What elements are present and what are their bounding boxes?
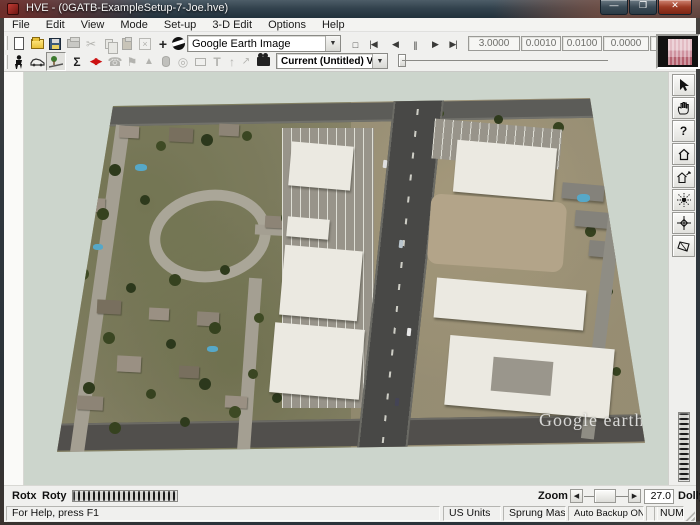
delete-button[interactable]: × <box>136 35 154 52</box>
save-icon <box>49 38 61 50</box>
toolbar: ✂ × + Google Earth Image ▼ □ |◀ ◀ || ▶ ▶… <box>4 33 696 72</box>
human-icon <box>13 55 25 69</box>
set-home-view-button[interactable] <box>672 166 695 188</box>
pause-button[interactable]: || <box>406 36 424 53</box>
copy-icon <box>105 39 113 49</box>
viewer-right-toolbar: ? <box>668 72 696 485</box>
save-button[interactable] <box>46 35 64 52</box>
zoom-value-field[interactable]: 27.0 <box>644 489 674 504</box>
cursor-arrow-icon <box>678 78 690 92</box>
torus-tool-button[interactable]: ◎ <box>174 53 192 70</box>
pan-tool-button[interactable] <box>672 97 695 119</box>
cylinder-tool-button[interactable] <box>157 53 175 70</box>
car <box>399 240 404 248</box>
window-frame-right <box>696 18 700 522</box>
arrow-up-icon: ↑ <box>229 55 235 69</box>
menu-edit[interactable]: Edit <box>38 18 73 32</box>
zoom-increase-button[interactable]: ▶ <box>628 489 641 503</box>
zoom-slider-thumb[interactable] <box>594 489 616 503</box>
pool <box>135 164 147 171</box>
perspective-plane-icon <box>677 240 691 253</box>
flag-tool-button[interactable]: ⚑ <box>123 53 141 70</box>
building-roof <box>269 322 365 400</box>
step-field-2[interactable]: 0.0100 <box>562 36 602 51</box>
step-back-button[interactable]: ◀ <box>386 36 404 53</box>
building-roof <box>288 141 354 190</box>
status-num-lock: NUM <box>654 506 684 521</box>
arrow-ne-icon: ↗ <box>242 57 250 67</box>
roty-label: Roty <box>42 490 66 502</box>
building-roof-complex <box>444 335 614 419</box>
go-to-start-button[interactable]: |◀ <box>364 36 382 53</box>
environment-combo[interactable]: Google Earth Image ▼ <box>187 35 341 52</box>
status-mass: Sprung Mass <box>503 506 566 521</box>
menu-mode[interactable]: Mode <box>112 18 156 32</box>
earth-button[interactable] <box>169 35 187 52</box>
cylinder-icon <box>162 56 170 67</box>
pool <box>577 194 590 202</box>
open-file-button[interactable] <box>28 35 46 52</box>
dolly-thumbwheel[interactable] <box>678 412 690 482</box>
dolly-label: Dolly <box>678 490 700 502</box>
go-to-end-button[interactable]: ▶| <box>444 36 462 53</box>
human-mode-button[interactable] <box>10 53 28 70</box>
title-bar[interactable]: HVE - (0GATB-ExampleSetup-7-Joe.hve) — ❐… <box>0 0 700 18</box>
menu-file[interactable]: File <box>4 18 38 32</box>
value-field[interactable]: 0.0000 <box>603 36 649 51</box>
car <box>407 328 412 336</box>
maximize-button[interactable]: ❐ <box>629 0 657 15</box>
stop-icon: □ <box>353 40 357 50</box>
app-icon <box>7 3 19 15</box>
environment-mode-button[interactable] <box>46 52 66 71</box>
menu-bar: File Edit View Mode Set-up 3-D Edit Opti… <box>4 18 696 32</box>
print-button[interactable] <box>64 35 82 52</box>
animation-slider-track[interactable] <box>402 60 608 61</box>
crosshair-icon <box>677 216 691 230</box>
camera-view-button[interactable] <box>254 53 272 70</box>
texture-preview-image <box>668 39 692 65</box>
status-help-text: For Help, press F1 <box>6 506 440 521</box>
delete-icon: × <box>139 38 151 50</box>
camera-icon <box>257 57 270 66</box>
chevron-down-icon[interactable]: ▼ <box>372 54 387 68</box>
status-units: US Units <box>443 506 501 521</box>
skip-end-icon: ▶| <box>449 39 456 50</box>
menu-options[interactable]: Options <box>260 18 314 32</box>
paste-button[interactable] <box>118 35 136 52</box>
new-file-icon <box>14 37 24 50</box>
building-roof-large <box>453 140 557 201</box>
zoom-label: Zoom <box>538 490 568 502</box>
new-file-button[interactable] <box>10 35 28 52</box>
roty-thumbwheel[interactable] <box>72 490 178 502</box>
toolbar-grip-2[interactable] <box>5 55 8 69</box>
print-icon <box>67 39 80 48</box>
status-backup: Auto Backup ON <box>568 506 644 521</box>
play-icon: ▶ <box>432 39 438 50</box>
home-set-icon <box>676 171 691 184</box>
phone-icon: ☎ <box>108 56 123 68</box>
view-combo-value: Current (Untitled) View <box>277 56 372 67</box>
sigma-icon: Σ <box>73 55 80 69</box>
pool <box>93 244 103 250</box>
view-combo[interactable]: Current (Untitled) View ▼ <box>276 53 388 69</box>
cone-icon: ▲ <box>144 57 154 67</box>
cut-button[interactable]: ✂ <box>82 35 100 52</box>
viewer-left-trim <box>4 72 24 485</box>
playback-mode-button[interactable]: ◀▶ <box>86 53 104 70</box>
question-icon: ? <box>680 124 687 138</box>
help-button[interactable]: ? <box>672 120 695 142</box>
chevron-down-icon[interactable]: ▼ <box>325 36 340 51</box>
home-icon <box>677 148 691 161</box>
box-icon <box>195 58 206 66</box>
hand-icon <box>677 101 690 115</box>
path-tool-button[interactable]: ☎ <box>106 53 124 70</box>
pick-tool-button[interactable] <box>672 74 695 96</box>
vehicle-icon <box>30 57 45 67</box>
box-tool-button[interactable] <box>191 53 209 70</box>
red-diamond-icon: ◀▶ <box>90 56 100 67</box>
app-window: HVE - (0GATB-ExampleSetup-7-Joe.hve) — ❐… <box>0 0 700 525</box>
pool <box>207 346 218 352</box>
car <box>383 160 388 168</box>
cone-tool-button[interactable]: ▲ <box>140 53 158 70</box>
plus-icon: + <box>159 36 167 52</box>
step-back-icon: ◀ <box>392 39 398 50</box>
arrow-ne-tool-button[interactable]: ↗ <box>237 53 255 70</box>
paste-icon <box>122 38 132 50</box>
copy-button[interactable] <box>100 35 118 52</box>
text-tool-icon: T <box>213 55 220 69</box>
viewer-bottom-controls: Rotx Roty Zoom ◀ ▶ 27.0 Dolly <box>4 485 696 505</box>
menu-3d-edit[interactable]: 3-D Edit <box>204 18 260 32</box>
zoom-decrease-button[interactable]: ◀ <box>570 489 583 503</box>
home-view-button[interactable] <box>672 143 695 165</box>
open-folder-icon <box>31 39 44 49</box>
car <box>395 398 400 406</box>
view-all-icon <box>677 193 691 207</box>
event-mode-button[interactable]: Σ <box>68 53 86 70</box>
menu-setup[interactable]: Set-up <box>156 18 204 32</box>
aerial-image[interactable]: Google earth <box>57 98 645 452</box>
menu-help[interactable]: Help <box>314 18 353 32</box>
status-bar: For Help, press F1 US Units Sprung Mass … <box>4 505 696 522</box>
globe-icon <box>172 37 185 50</box>
building-roof <box>286 216 330 240</box>
environment-icon <box>49 55 63 68</box>
pause-icon: || <box>414 40 417 50</box>
stop-button[interactable]: □ <box>346 36 364 53</box>
cut-icon: ✂ <box>86 38 96 50</box>
resize-grip[interactable] <box>683 509 695 521</box>
camera-type-button[interactable] <box>672 235 695 257</box>
view-all-button[interactable] <box>672 189 695 211</box>
skip-start-icon: |◀ <box>369 39 376 50</box>
flag-icon: ⚑ <box>127 56 138 68</box>
close-button[interactable]: ✕ <box>658 0 692 15</box>
menu-view[interactable]: View <box>73 18 113 32</box>
minimize-button[interactable]: — <box>600 0 628 15</box>
google-earth-watermark: Google earth <box>539 410 644 431</box>
toolbar-grip[interactable] <box>5 36 8 50</box>
seek-button[interactable] <box>672 212 695 234</box>
environment-combo-value: Google Earth Image <box>188 38 325 50</box>
rotx-label: Rotx <box>12 490 36 502</box>
building-roof <box>279 245 363 322</box>
step-field-1[interactable]: 0.0010 <box>521 36 561 51</box>
dirt-lot <box>427 193 568 272</box>
torus-icon: ◎ <box>178 56 188 68</box>
play-button[interactable]: ▶ <box>426 36 444 53</box>
time-field[interactable]: 3.0000 <box>468 36 520 51</box>
texture-preview <box>656 34 700 69</box>
window-title: HVE - (0GATB-ExampleSetup-7-Joe.hve) <box>26 2 228 14</box>
vehicle-mode-button[interactable] <box>28 53 46 70</box>
